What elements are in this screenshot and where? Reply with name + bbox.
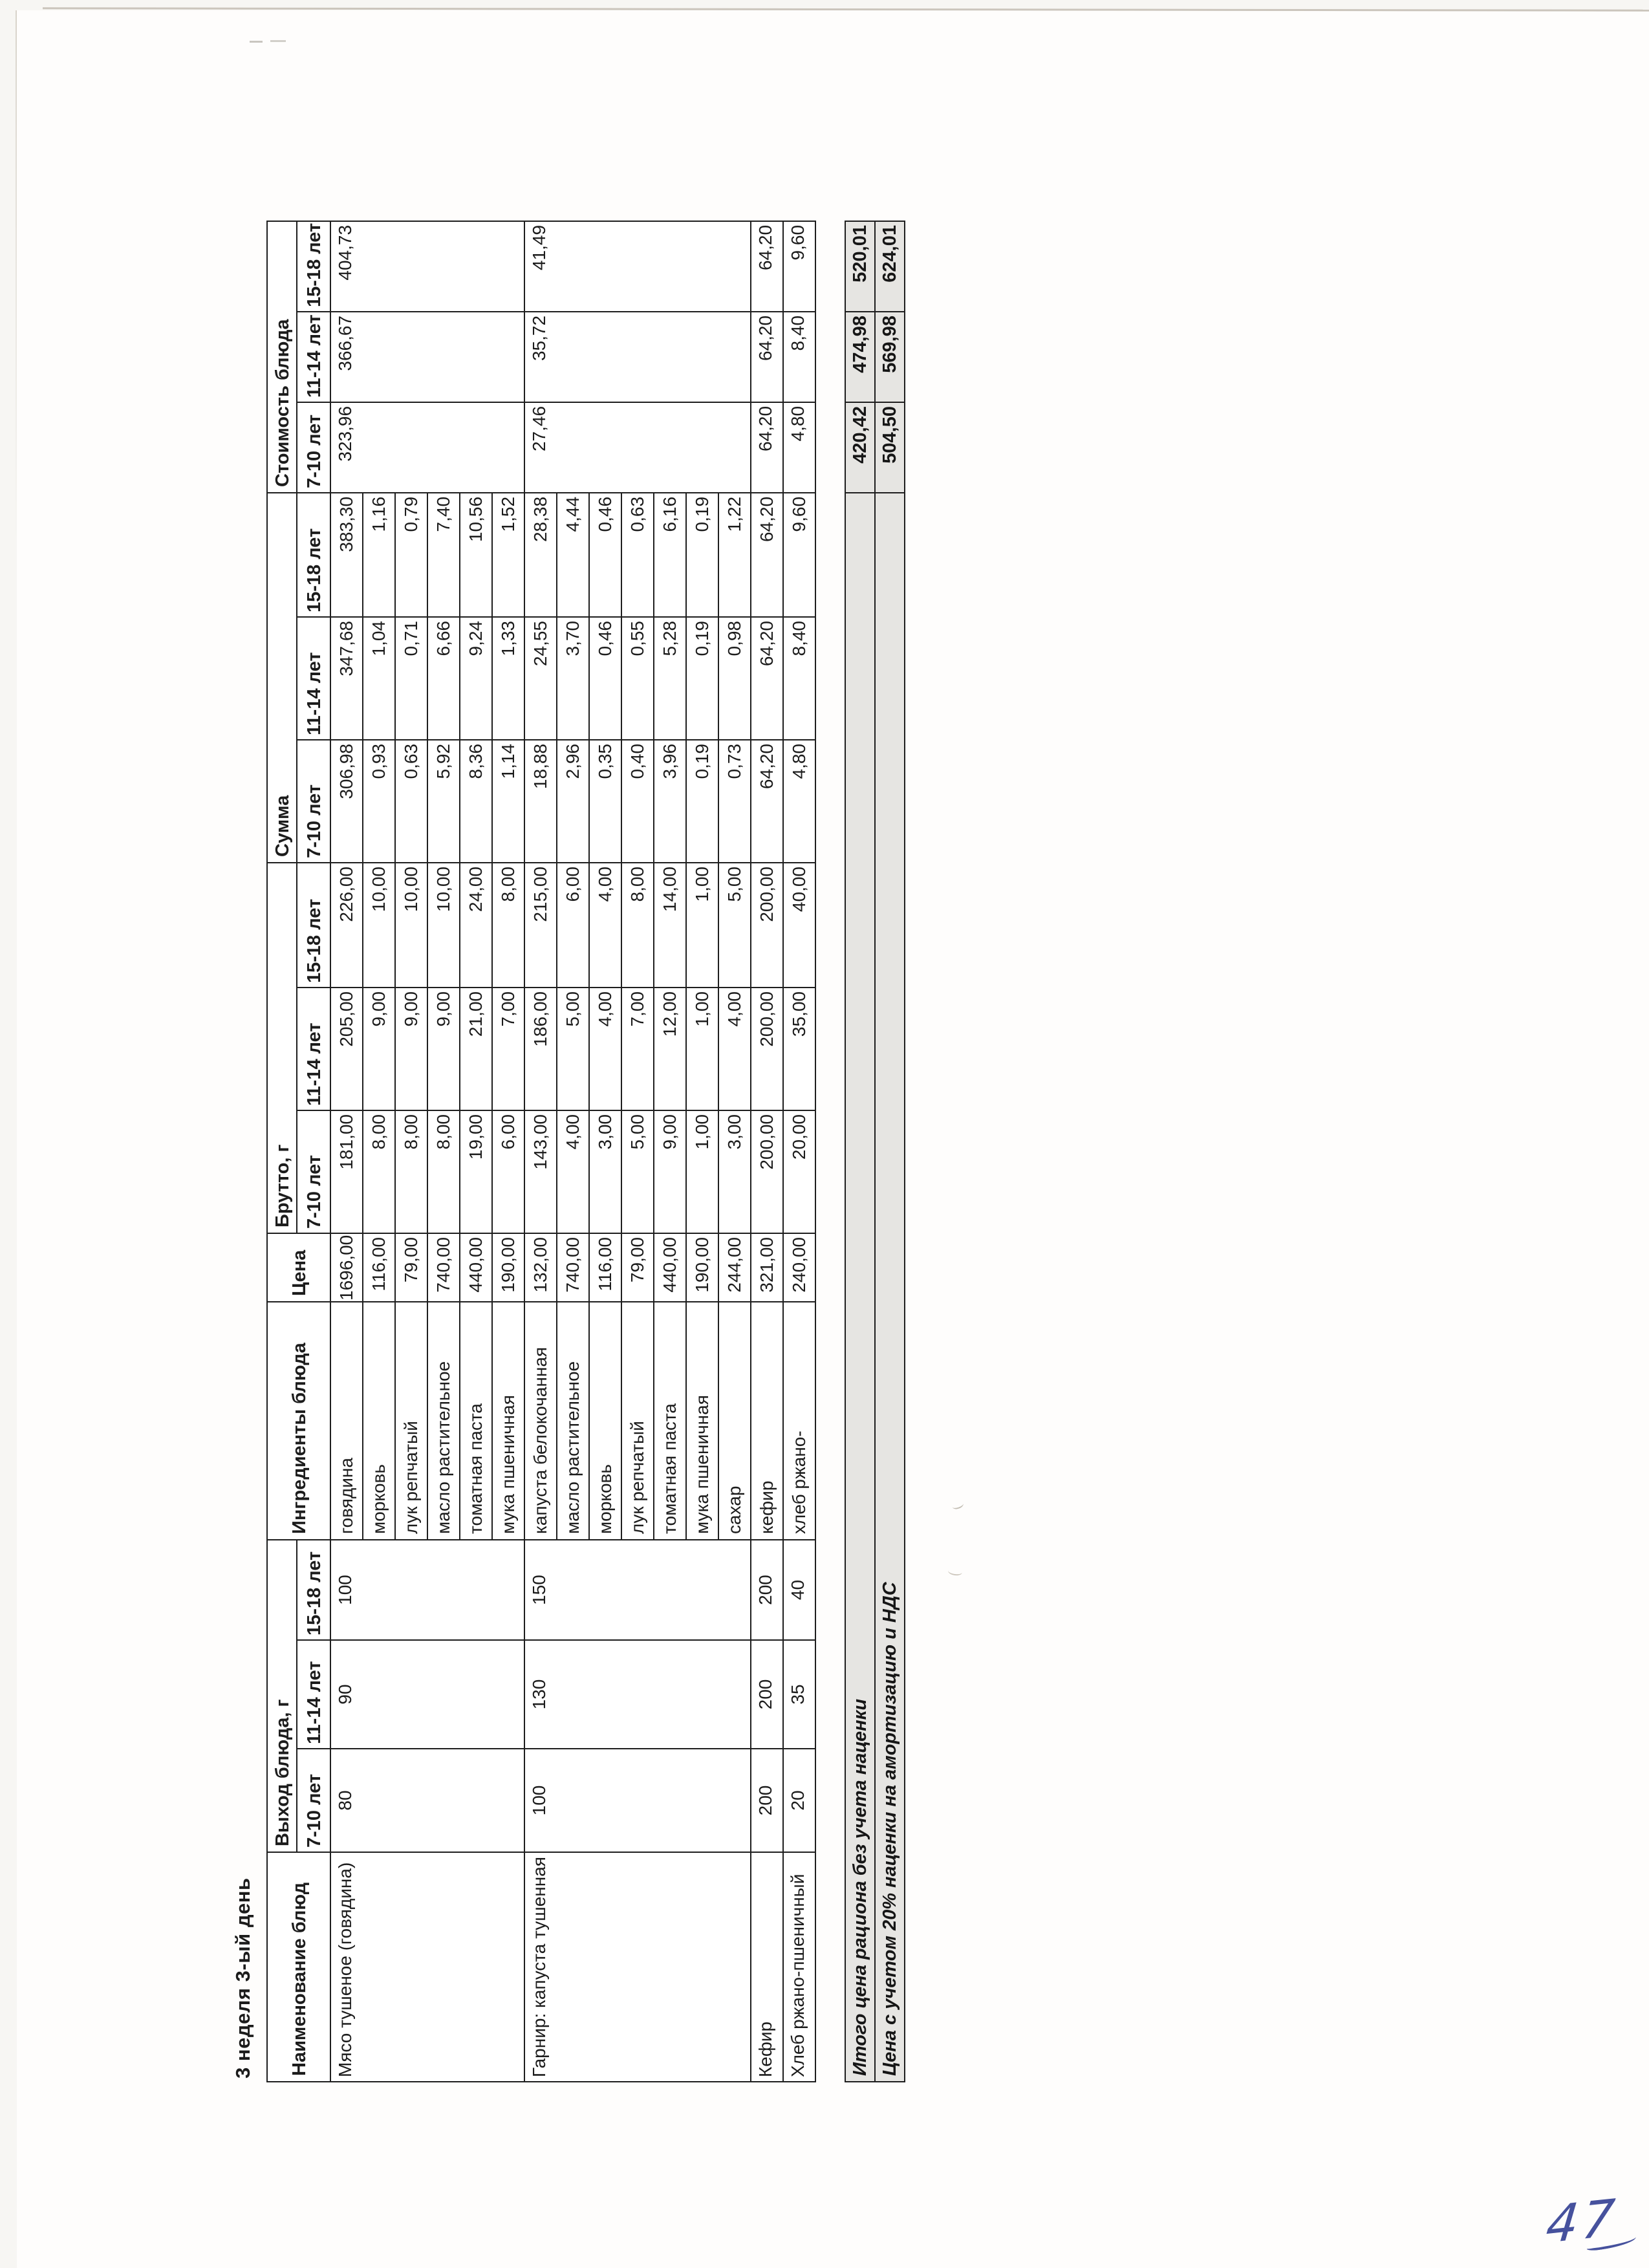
scan-dash-artifact: [250, 39, 288, 44]
cell-brutto: 9,00: [395, 988, 427, 1110]
cell-price: 116,00: [589, 1233, 621, 1302]
cell-vykhod: 100: [524, 1749, 751, 1852]
cell-brutto: 10,00: [427, 863, 460, 988]
cell-summa: 383,30: [330, 493, 363, 617]
cell-brutto: 21,00: [460, 988, 492, 1110]
cell-brutto: 6,00: [492, 1110, 524, 1233]
header-age-col: 11-14 лет: [297, 312, 330, 402]
cell-price: 116,00: [363, 1233, 395, 1302]
cell-summa: 1,22: [718, 493, 751, 617]
cell-brutto: 8,00: [395, 1110, 427, 1233]
header-ingredients: Ингредиенты блюда: [267, 1302, 330, 1540]
cell-dish-cost: 366,67: [330, 312, 524, 402]
cell-summa: 8,36: [460, 740, 492, 863]
cell-ingredient: морковь: [363, 1302, 395, 1540]
page-title: 3 неделя 3-ый день: [226, 213, 266, 2082]
cell-summa: 0,40: [621, 740, 654, 863]
cell-brutto: 3,00: [718, 1110, 751, 1233]
cell-summa: 64,20: [751, 493, 783, 617]
cell-dish-cost: 41,49: [524, 221, 751, 312]
cell-summa: 28,38: [524, 493, 557, 617]
cell-brutto: 226,00: [330, 863, 363, 988]
cell-brutto: 5,00: [621, 1110, 654, 1233]
table-row: Кефир 200 200 200 кефир 321,00 200,00 20…: [751, 221, 783, 2082]
cell-brutto: 205,00: [330, 988, 363, 1110]
cell-dish-cost: 4,80: [783, 402, 815, 493]
cell-brutto: 8,00: [492, 863, 524, 988]
cell-ingredient: говядина: [330, 1302, 363, 1540]
cell-ingredient: капуста белокочанная: [524, 1302, 557, 1540]
cell-summa: 24,55: [524, 617, 557, 740]
cell-vykhod: 200: [751, 1540, 783, 1640]
cell-brutto: 10,00: [363, 863, 395, 988]
cell-summa: 1,16: [363, 493, 395, 617]
cell-summa: 9,60: [783, 493, 815, 617]
cell-brutto: 186,00: [524, 988, 557, 1110]
cell-ingredient: морковь: [589, 1302, 621, 1540]
cell-vykhod: 150: [524, 1540, 751, 1640]
cell-vykhod: 40: [783, 1540, 815, 1640]
cell-brutto: 9,00: [654, 1110, 686, 1233]
cell-vykhod: 20: [783, 1749, 815, 1852]
cell-price: 244,00: [718, 1233, 751, 1302]
cell-ingredient: томатная паста: [654, 1302, 686, 1540]
cell-ingredient: томатная паста: [460, 1302, 492, 1540]
cell-dish-cost: 35,72: [524, 312, 751, 402]
cell-summa: 7,40: [427, 493, 460, 617]
cell-summa: 0,63: [395, 740, 427, 863]
cell-price: 132,00: [524, 1233, 557, 1302]
cell-summa: 306,98: [330, 740, 363, 863]
cell-brutto: 8,00: [621, 863, 654, 988]
cell-brutto: 14,00: [654, 863, 686, 988]
cell-summa: 0,35: [589, 740, 621, 863]
cell-brutto: 35,00: [783, 988, 815, 1110]
cell-dish-cost: 64,20: [751, 221, 783, 312]
cell-summa: 0,98: [718, 617, 751, 740]
cell-ingredient: мука пшеничная: [492, 1302, 524, 1540]
cell-summa: 64,20: [751, 740, 783, 863]
cell-brutto: 40,00: [783, 863, 815, 988]
cell-ingredient: масло растительное: [427, 1302, 460, 1540]
header-age-col: 7-10 лет: [297, 402, 330, 493]
cell-dish-cost: 404,73: [330, 221, 524, 312]
table-row: Хлеб ржано-пшеничный 20 35 40 хлеб ржано…: [783, 221, 815, 2082]
cell-vykhod: 90: [330, 1640, 524, 1749]
menu-costing-table: Наименование блюд Выход блюда, г Ингреди…: [266, 221, 816, 2082]
cell-price: 240,00: [783, 1233, 815, 1302]
cell-brutto: 20,00: [783, 1110, 815, 1233]
cell-summa: 4,80: [783, 740, 815, 863]
cell-price: 79,00: [621, 1233, 654, 1302]
cell-brutto: 10,00: [395, 863, 427, 988]
cell-summa: 0,19: [686, 617, 718, 740]
cell-price: 321,00: [751, 1233, 783, 1302]
cell-summa: 0,46: [589, 493, 621, 617]
cell-dish-name: Гарнир: капуста тушенная: [524, 1852, 751, 2082]
cell-summa: 0,79: [395, 493, 427, 617]
cell-brutto: 12,00: [654, 988, 686, 1110]
cell-summa: 1,33: [492, 617, 524, 740]
cell-brutto: 8,00: [427, 1110, 460, 1233]
cell-brutto: 1,00: [686, 988, 718, 1110]
cell-price: 740,00: [427, 1233, 460, 1302]
cell-brutto: 7,00: [621, 988, 654, 1110]
cell-summa: 347,68: [330, 617, 363, 740]
cell-brutto: 1,00: [686, 863, 718, 988]
cell-brutto: 19,00: [460, 1110, 492, 1233]
totals-table: Итого цена рациона без учета наценки 420…: [845, 221, 905, 2082]
cell-summa: 18,88: [524, 740, 557, 863]
totals-value: 474,98: [845, 312, 875, 402]
totals-row: Итого цена рациона без учета наценки 420…: [845, 221, 875, 2082]
cell-brutto: 8,00: [363, 1110, 395, 1233]
cell-brutto: 3,00: [589, 1110, 621, 1233]
cell-summa: 0,19: [686, 740, 718, 863]
handwritten-page-number: 47: [1544, 2186, 1649, 2267]
cell-summa: 5,28: [654, 617, 686, 740]
cell-summa: 0,93: [363, 740, 395, 863]
cell-summa: 0,19: [686, 493, 718, 617]
cell-brutto: 4,00: [557, 1110, 589, 1233]
cell-brutto: 200,00: [751, 988, 783, 1110]
header-row-ages: 7-10 лет 11-14 лет 15-18 лет 7-10 лет 11…: [297, 221, 330, 2082]
cell-brutto: 5,00: [718, 863, 751, 988]
header-age-col: 11-14 лет: [297, 1640, 330, 1749]
cell-summa: 64,20: [751, 617, 783, 740]
cell-dish-name: Мясо тушеное (говядина): [330, 1852, 524, 2082]
header-age-col: 11-14 лет: [297, 988, 330, 1110]
cell-ingredient: мука пшеничная: [686, 1302, 718, 1540]
cell-vykhod: 200: [751, 1640, 783, 1749]
cell-brutto: 7,00: [492, 988, 524, 1110]
header-age-col: 7-10 лет: [297, 740, 330, 863]
cell-vykhod: 130: [524, 1640, 751, 1749]
totals-value: 420,42: [845, 402, 875, 493]
header-age-col: 15-18 лет: [297, 221, 330, 312]
cell-price: 190,00: [492, 1233, 524, 1302]
cell-brutto: 9,00: [427, 988, 460, 1110]
rotated-document-content: 3 неделя 3-ый день Наименование блюд Вых…: [226, 213, 904, 2082]
totals-value: 624,01: [875, 221, 905, 312]
cell-price: 190,00: [686, 1233, 718, 1302]
cell-brutto: 4,00: [589, 863, 621, 988]
cell-brutto: 9,00: [363, 988, 395, 1110]
header-price: Цена: [267, 1233, 330, 1302]
cell-ingredient: лук репчатый: [395, 1302, 427, 1540]
scan-left-edge: [16, 10, 17, 541]
cell-dish-cost: 27,46: [524, 402, 751, 493]
header-age-col: 15-18 лет: [297, 1540, 330, 1640]
header-vykhod-group: Выход блюда, г: [267, 1540, 297, 1852]
cell-ingredient: кефир: [751, 1302, 783, 1540]
cell-brutto: 143,00: [524, 1110, 557, 1233]
header-cost-group: Стоимость блюда: [267, 221, 297, 493]
cell-dish-cost: 323,96: [330, 402, 524, 493]
cell-summa: 3,70: [557, 617, 589, 740]
cell-vykhod: 35: [783, 1640, 815, 1749]
cell-summa: 2,96: [557, 740, 589, 863]
cell-brutto: 1,00: [686, 1110, 718, 1233]
totals-value: 504,50: [875, 402, 905, 493]
cell-vykhod: 200: [751, 1749, 783, 1852]
cell-summa: 0,73: [718, 740, 751, 863]
cell-summa: 3,96: [654, 740, 686, 863]
cell-ingredient: сахар: [718, 1302, 751, 1540]
cell-dish-cost: 64,20: [751, 312, 783, 402]
cell-summa: 0,55: [621, 617, 654, 740]
cell-summa: 6,66: [427, 617, 460, 740]
cell-price: 1696,00: [330, 1233, 363, 1302]
cell-price: 740,00: [557, 1233, 589, 1302]
cell-brutto: 4,00: [718, 988, 751, 1110]
cell-summa: 9,24: [460, 617, 492, 740]
cell-ingredient: лук репчатый: [621, 1302, 654, 1540]
header-age-col: 7-10 лет: [297, 1110, 330, 1233]
totals-value: 569,98: [875, 312, 905, 402]
table-row: Мясо тушеное (говядина) 80 90 100 говяди…: [330, 221, 363, 2082]
cell-price: 440,00: [654, 1233, 686, 1302]
header-age-col: 7-10 лет: [297, 1749, 330, 1852]
cell-brutto: 4,00: [589, 988, 621, 1110]
cell-summa: 0,63: [621, 493, 654, 617]
cell-brutto: 24,00: [460, 863, 492, 988]
header-age-col: 15-18 лет: [297, 493, 330, 617]
header-age-col: 15-18 лет: [297, 863, 330, 988]
cell-summa: 1,04: [363, 617, 395, 740]
cell-dish-cost: 9,60: [783, 221, 815, 312]
cell-brutto: 181,00: [330, 1110, 363, 1233]
header-summa-group: Сумма: [267, 493, 297, 863]
cell-summa: 5,92: [427, 740, 460, 863]
cell-summa: 6,16: [654, 493, 686, 617]
header-row-groups: Наименование блюд Выход блюда, г Ингреди…: [267, 221, 297, 2082]
cell-summa: 0,71: [395, 617, 427, 740]
cell-summa: 8,40: [783, 617, 815, 740]
header-brutto-group: Брутто, г: [267, 863, 297, 1233]
cell-ingredient: масло растительное: [557, 1302, 589, 1540]
cell-vykhod: 80: [330, 1749, 524, 1852]
scanned-document: { "page": { "title": "3 неделя 3-ый день…: [0, 0, 1649, 2268]
cell-brutto: 6,00: [557, 863, 589, 988]
cell-brutto: 200,00: [751, 1110, 783, 1233]
cell-brutto: 5,00: [557, 988, 589, 1110]
totals-label: Итого цена рациона без учета наценки: [845, 493, 875, 2082]
cell-summa: 4,44: [557, 493, 589, 617]
cell-dish-name: Хлеб ржано-пшеничный: [783, 1852, 815, 2082]
cell-price: 79,00: [395, 1233, 427, 1302]
cell-brutto: 215,00: [524, 863, 557, 988]
cell-summa: 1,52: [492, 493, 524, 617]
cell-summa: 1,14: [492, 740, 524, 863]
table-row: Гарнир: капуста тушенная 100 130 150 кап…: [524, 221, 557, 2082]
totals-label: Цена с учетом 20% наценки на амортизацию…: [875, 493, 905, 2082]
cell-ingredient: хлеб ржано-: [783, 1302, 815, 1540]
header-age-col: 11-14 лет: [297, 617, 330, 740]
totals-row: Цена с учетом 20% наценки на амортизацию…: [875, 221, 905, 2082]
cell-summa: 0,46: [589, 617, 621, 740]
cell-price: 440,00: [460, 1233, 492, 1302]
cell-vykhod: 100: [330, 1540, 524, 1640]
cell-dish-cost: 64,20: [751, 402, 783, 493]
header-dish-name: Наименование блюд: [267, 1852, 330, 2082]
totals-value: 520,01: [845, 221, 875, 312]
cell-dish-cost: 8,40: [783, 312, 815, 402]
cell-dish-name: Кефир: [751, 1852, 783, 2082]
cell-brutto: 200,00: [751, 863, 783, 988]
cell-summa: 10,56: [460, 493, 492, 617]
